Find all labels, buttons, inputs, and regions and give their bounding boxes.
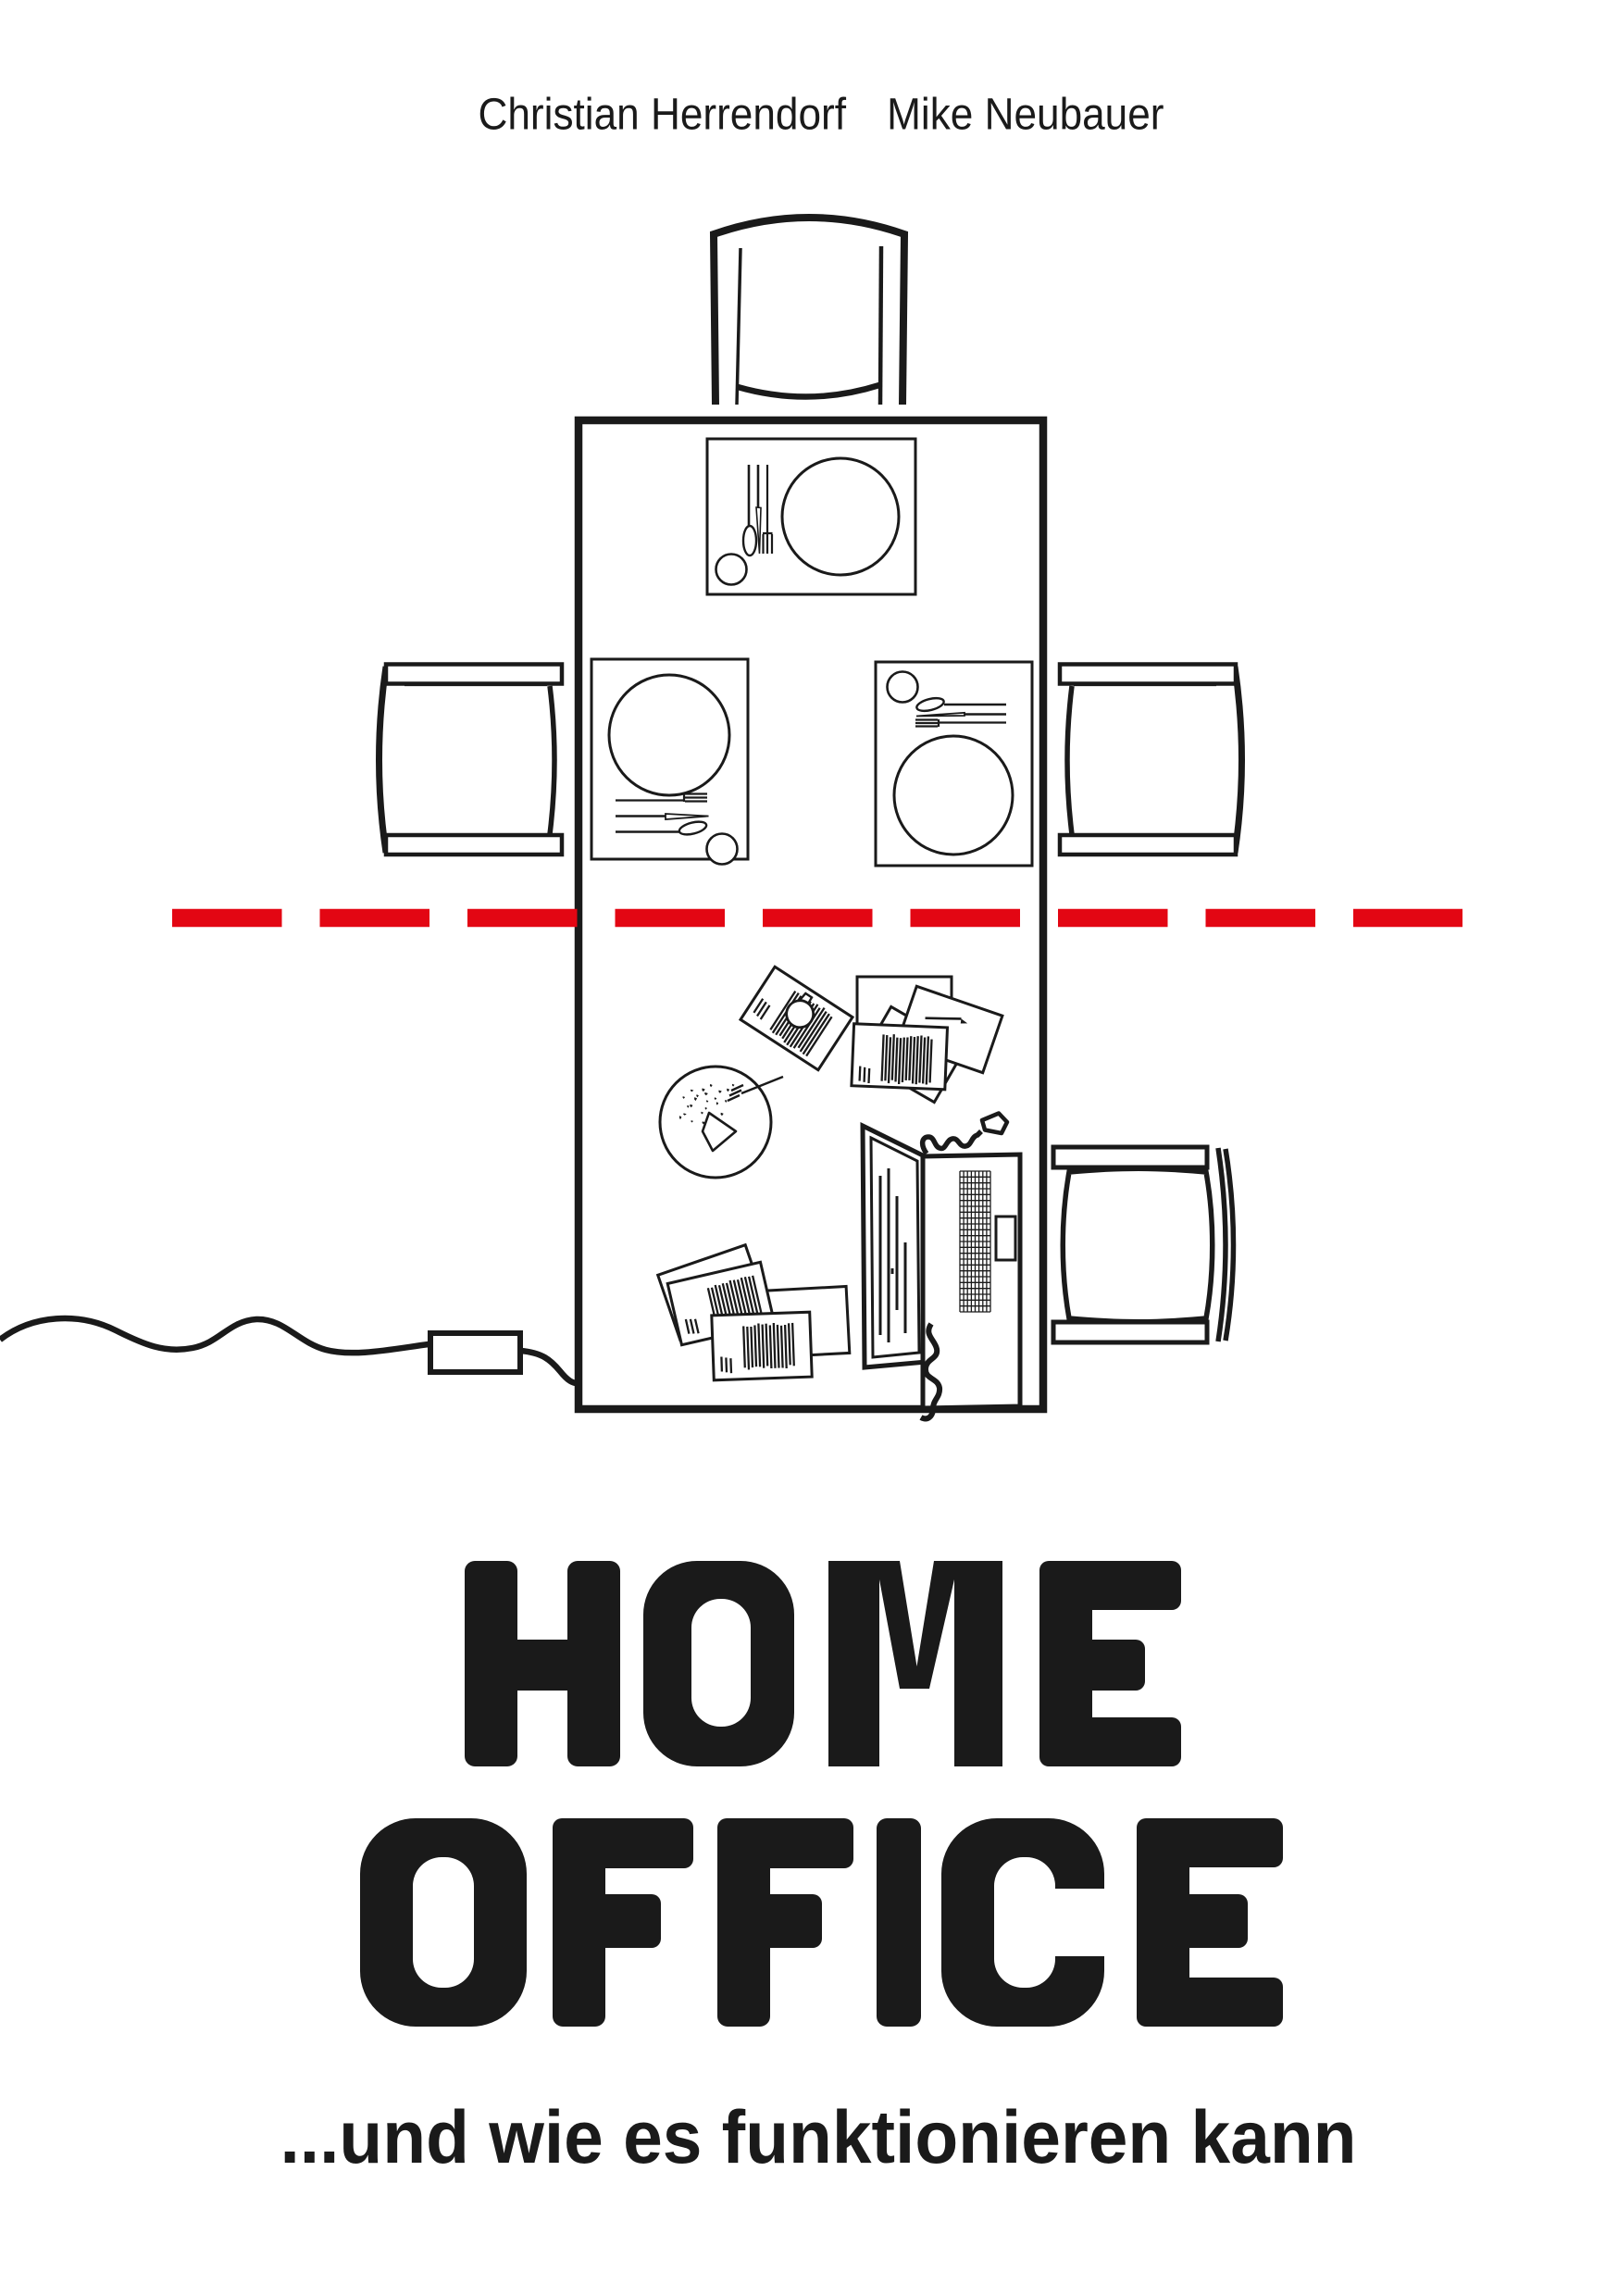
svg-text:...und wie es funktionieren ka: ...und wie es funktionieren kann: [280, 2096, 1357, 2179]
svg-text:Christian Herrendorf Mike Neu: Christian Herrendorf Mike Neubauer: [479, 91, 1164, 140]
